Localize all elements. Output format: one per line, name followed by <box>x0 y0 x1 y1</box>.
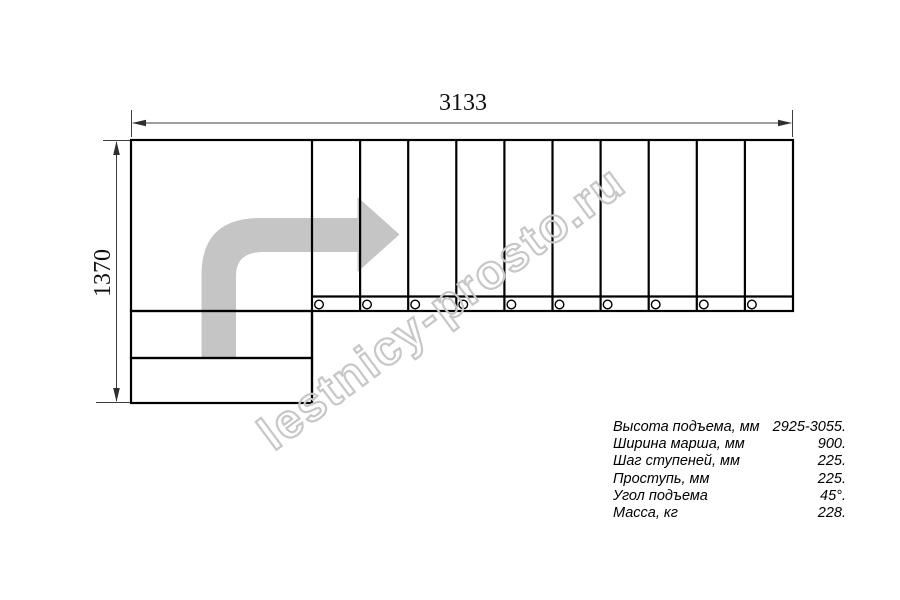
spec-row-mass: Масса, кг 228. <box>613 505 846 522</box>
spec-value: 225. <box>818 471 846 488</box>
baluster-circle <box>651 300 660 309</box>
baluster-circle <box>363 300 372 309</box>
spec-row-height: Высота подъема, мм 2925-3055. <box>613 419 846 436</box>
spec-value: 900. <box>818 436 846 453</box>
baluster-circles <box>315 300 757 309</box>
baluster-circle <box>315 300 324 309</box>
spec-table: Высота подъема, мм 2925-3055. Ширина мар… <box>613 419 846 522</box>
arrowhead-up <box>113 141 120 155</box>
spec-row-tread-depth: Проступь, мм 225. <box>613 471 846 488</box>
spec-row-angle: Угол подъема 45°. <box>613 488 846 505</box>
arrowhead-down <box>113 388 120 402</box>
baluster-circle <box>700 300 709 309</box>
width-dimension-label: 3133 <box>412 90 514 117</box>
height-dimension-label: 1370 <box>90 230 116 316</box>
spec-value: 228. <box>818 505 846 522</box>
spec-label: Угол подъема <box>613 488 708 505</box>
spec-label: Шаг ступеней, мм <box>613 453 740 470</box>
spec-row-flight-width: Ширина марша, мм 900. <box>613 436 846 453</box>
arrowhead-right <box>778 120 792 126</box>
baluster-circle <box>507 300 516 309</box>
spec-label: Проступь, мм <box>613 471 709 488</box>
spec-row-step-pitch: Шаг ступеней, мм 225. <box>613 453 846 470</box>
staircase-drawing-page: 3133 1370 lestnicy-prosto.ru Высота подъ… <box>0 0 900 600</box>
baluster-circle <box>603 300 612 309</box>
spec-value: 45°. <box>820 488 846 505</box>
spec-label: Высота подъема, мм <box>613 419 760 436</box>
spec-value: 225. <box>818 453 846 470</box>
spec-label: Масса, кг <box>613 505 678 522</box>
baluster-circle <box>748 300 757 309</box>
spec-value: 2925-3055. <box>773 419 846 436</box>
arrowhead-left <box>132 120 146 126</box>
spec-label: Ширина марша, мм <box>613 436 745 453</box>
baluster-circle <box>555 300 564 309</box>
